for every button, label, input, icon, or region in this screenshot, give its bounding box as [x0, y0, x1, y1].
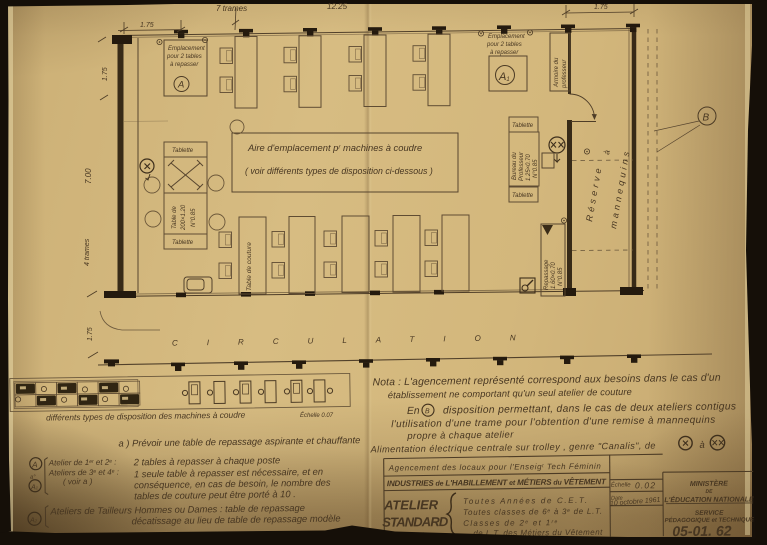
svg-text:Table de: Table de	[172, 206, 178, 229]
svg-text:B: B	[425, 408, 430, 415]
svg-text:Ateliers de 3e et 4e :: Ateliers de 3e et 4e :	[48, 468, 119, 478]
svg-text:Tablette: Tablette	[512, 123, 534, 129]
svg-text:0.02: 0.02	[635, 480, 656, 490]
svg-text:N°0.85: N°0.85	[558, 267, 564, 286]
svg-text:à: à	[602, 149, 612, 155]
svg-text:1.75: 1.75	[140, 22, 154, 29]
svg-text:Toutes Années de C.E.T.: Toutes Années de C.E.T.	[463, 496, 587, 506]
svg-text:4 trames: 4 trames	[84, 238, 91, 266]
svg-text:A1: A1	[30, 484, 38, 491]
svg-text:1.25×0.70: 1.25×0.70	[526, 153, 532, 181]
svg-text:A1: A1	[498, 71, 510, 83]
svg-text:A: A	[177, 79, 184, 90]
svg-text:12.25: 12.25	[327, 2, 348, 11]
svg-text:Bureau du: Bureau du	[512, 152, 518, 180]
svg-text:Échelle 0.07: Échelle 0.07	[300, 412, 334, 419]
svg-text:à repasser: à repasser	[170, 62, 199, 68]
svg-text:mannequins: mannequins	[608, 148, 632, 230]
svg-text:INDUSTRIES de L'HABILLEMENT et: INDUSTRIES de L'HABILLEMENT et MÉTIERS d…	[387, 477, 607, 488]
svg-text:Classes de 2e et 1re: Classes de 2e et 1re	[463, 518, 557, 528]
svg-text:Alimentation électrique centra: Alimentation électrique centrale sur tro…	[369, 441, 655, 455]
svg-text:Emplacement: Emplacement	[488, 34, 525, 40]
svg-text:DE: DE	[705, 489, 713, 495]
svg-text:Tablette: Tablette	[512, 193, 534, 199]
svg-text:B: B	[703, 113, 710, 124]
svg-text:a ) Prévoir une table de repa: a ) Prévoir une table de repassage aspir…	[118, 434, 360, 448]
svg-text:( voir a ): ( voir a )	[63, 477, 93, 486]
svg-text:Atelier de 1er et 2e :: Atelier de 1er et 2e :	[48, 458, 117, 468]
svg-text:différents types de dispositio: différents types de disposition des mach…	[46, 410, 246, 423]
svg-text:En: En	[407, 406, 420, 417]
svg-text:à repasser: à repasser	[490, 50, 519, 56]
svg-text:ATELIER: ATELIER	[383, 497, 439, 512]
svg-text:7.00: 7.00	[84, 168, 93, 184]
svg-text:propre à chaque atelier: propre à chaque atelier	[406, 430, 514, 443]
svg-text:L'ÉDUCATION NATIONALE: L'ÉDUCATION NATIONALE	[664, 494, 754, 504]
svg-text:Agencement des locaux pour l'E: Agencement des locaux pour l'Enseigt Tec…	[388, 462, 602, 473]
svg-text:A: A	[31, 460, 37, 469]
svg-text:pour 2 tables: pour 2 tables	[486, 42, 522, 48]
svg-text:( voir différents types de dis: ( voir différents types de disposition c…	[245, 166, 433, 176]
svg-text:Réserve: Réserve	[584, 164, 604, 222]
svg-text:A2: A2	[29, 517, 38, 524]
svg-text:7 trames: 7 trames	[216, 4, 247, 13]
svg-text:Table de couture: Table de couture	[246, 242, 253, 291]
svg-text:1.75: 1.75	[594, 4, 608, 11]
svg-text:1.75: 1.75	[102, 67, 109, 81]
svg-text:établissement ne comportant qu: établissement ne comportant qu'un seul a…	[388, 387, 632, 400]
svg-text:N°0.85: N°0.85	[533, 159, 539, 178]
svg-text:Tablette: Tablette	[172, 148, 194, 154]
svg-text:Professeur: Professeur	[519, 151, 525, 181]
svg-text:professeur: professeur	[562, 59, 568, 89]
svg-text:décatissage au lieu de table d: décatissage au lieu de table de repassag…	[131, 512, 340, 526]
svg-text:Armoire du: Armoire du	[554, 57, 560, 88]
svg-text:1.75: 1.75	[87, 327, 94, 341]
svg-text:l'utilisation d'une trame pour: l'utilisation d'une trame pour l'obtenti…	[391, 415, 715, 431]
svg-text:Repassage: Repassage	[544, 259, 550, 290]
svg-text:Emplacement: Emplacement	[168, 46, 205, 52]
svg-text:à: à	[699, 439, 704, 450]
svg-text:Nota : L'agencement représen: Nota : L'agencement représenté correspon…	[373, 373, 721, 389]
svg-text:SERVICE: SERVICE	[695, 510, 724, 517]
svg-text:STANDARD: STANDARD	[382, 514, 449, 530]
svg-text:CIRCULATION: CIRCULATION	[172, 333, 545, 348]
svg-text:Échelle: Échelle	[611, 481, 631, 488]
svg-text:pour 2 tables: pour 2 tables	[166, 54, 202, 60]
svg-text:N°0.85: N°0.85	[191, 208, 197, 227]
svg-text:tables de couture peut être po: tables de couture peut être porté à 10 .	[134, 488, 296, 501]
svg-text:05-01. 62: 05-01. 62	[672, 523, 732, 540]
svg-text:2 tables à repasser à chaque p: 2 tables à repasser à chaque poste	[133, 454, 281, 467]
svg-text:Toutes classes de 6e à 3e de L: Toutes classes de 6e à 3e de L.T.	[463, 507, 602, 517]
svg-text:1.60×0.70: 1.60×0.70	[551, 261, 557, 289]
svg-text:Aire d'emplacement pr machines: Aire d'emplacement pr machines à coudre	[247, 142, 422, 153]
svg-text:MINISTÈRE: MINISTÈRE	[690, 479, 729, 488]
svg-text:200×1.20: 200×1.20	[181, 204, 187, 231]
svg-text:Tablette: Tablette	[172, 240, 194, 246]
